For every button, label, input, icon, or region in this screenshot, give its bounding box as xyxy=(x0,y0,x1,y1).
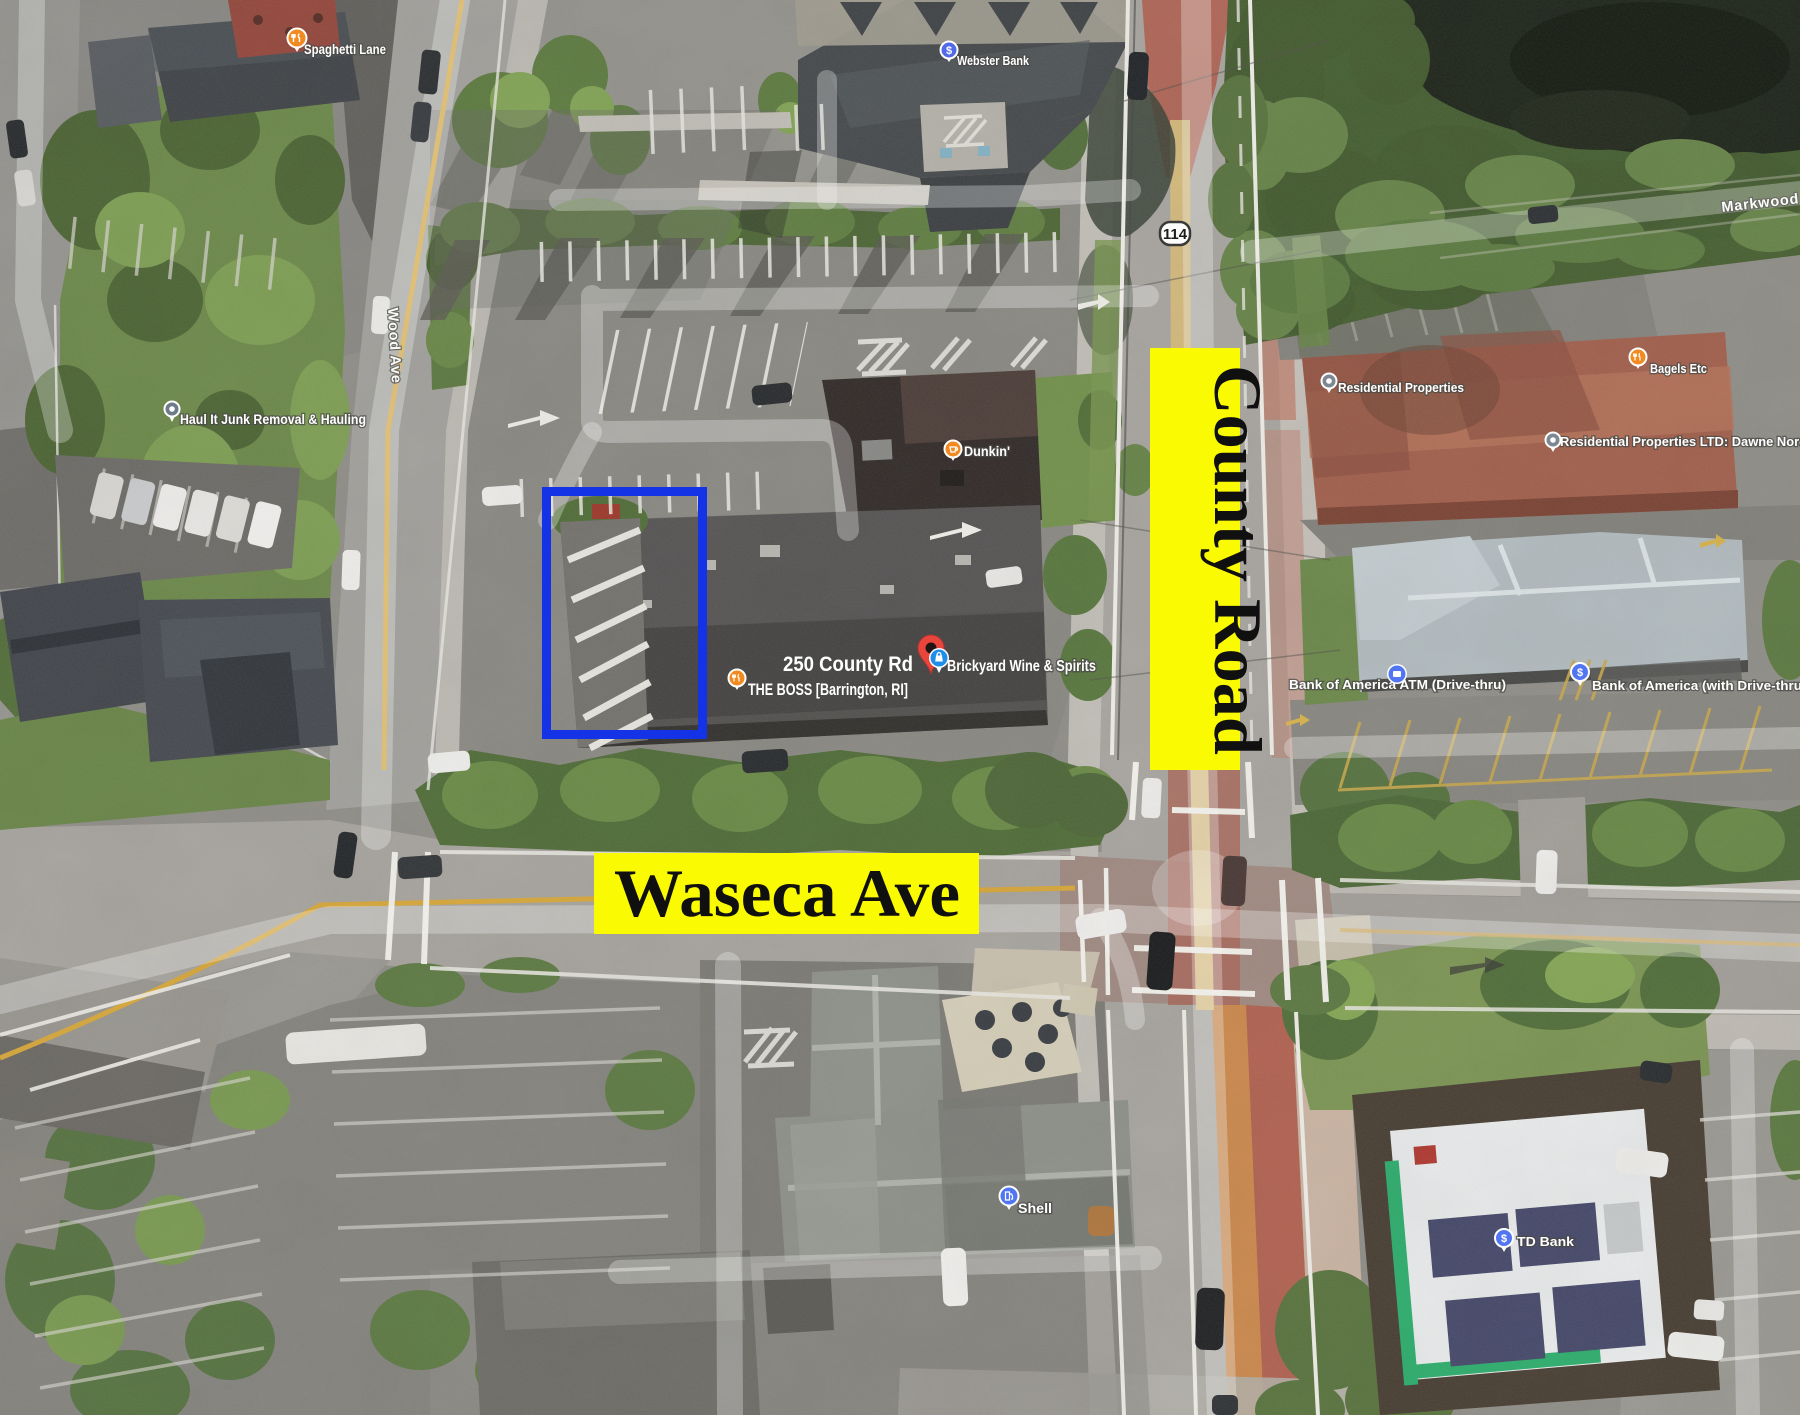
svg-text:Residential Properties LTD: Da: Residential Properties LTD: Dawne Nord xyxy=(1560,435,1800,449)
svg-text:Bagels Etc: Bagels Etc xyxy=(1650,362,1707,376)
svg-text:Haul It Junk Removal & Hauling: Haul It Junk Removal & Hauling xyxy=(180,412,366,427)
svg-text:$: $ xyxy=(1577,667,1583,679)
svg-text:Spaghetti Lane: Spaghetti Lane xyxy=(304,42,386,57)
svg-text:Shell: Shell xyxy=(1018,1201,1052,1216)
svg-text:$: $ xyxy=(946,45,952,57)
svg-text:Bank of America (with Drive-th: Bank of America (with Drive-thru xyxy=(1592,678,1800,693)
svg-text:Webster Bank: Webster Bank xyxy=(957,53,1030,68)
svg-text:Residential Properties: Residential Properties xyxy=(1338,381,1464,395)
svg-text:Dunkin': Dunkin' xyxy=(964,444,1010,459)
svg-text:250 County Rd: 250 County Rd xyxy=(783,653,913,676)
svg-text:114: 114 xyxy=(1163,226,1188,243)
svg-text:$: $ xyxy=(1501,1233,1507,1245)
svg-text:THE BOSS [Barrington, RI]: THE BOSS [Barrington, RI] xyxy=(748,681,908,699)
svg-text:Waseca Ave: Waseca Ave xyxy=(614,855,960,931)
svg-text:County Road: County Road xyxy=(1200,365,1276,755)
svg-text:Brickyard Wine & Spirits: Brickyard Wine & Spirits xyxy=(947,658,1096,675)
svg-text:TD Bank: TD Bank xyxy=(1517,1234,1575,1249)
